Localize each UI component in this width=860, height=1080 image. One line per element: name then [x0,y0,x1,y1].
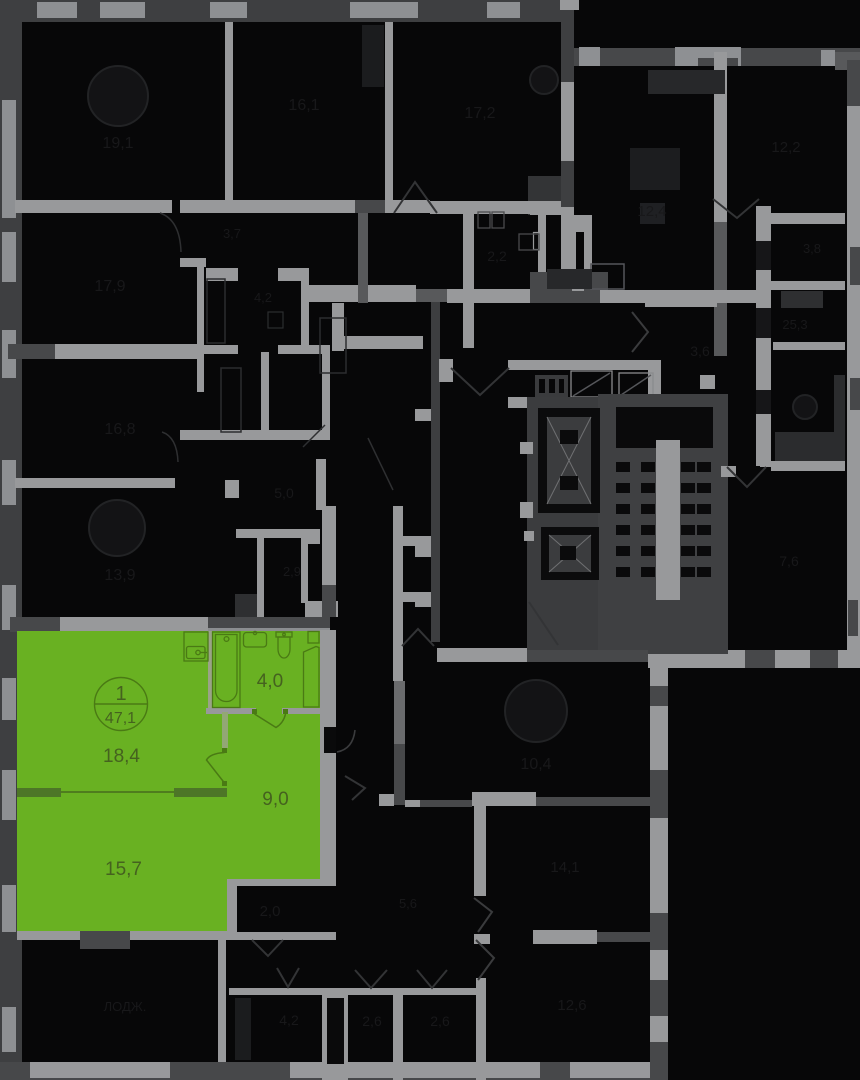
svg-text:25,3: 25,3 [782,317,807,332]
svg-text:18,4: 18,4 [103,746,140,767]
svg-text:16,1: 16,1 [288,97,319,114]
svg-text:4,0: 4,0 [257,671,283,692]
svg-text:5,6: 5,6 [399,896,417,911]
svg-text:12,4: 12,4 [637,203,666,220]
svg-text:19,1: 19,1 [102,135,133,152]
svg-text:3,7: 3,7 [223,226,241,241]
svg-text:4,2: 4,2 [254,290,272,305]
svg-text:15,7: 15,7 [105,859,142,880]
svg-text:12,6: 12,6 [557,997,586,1014]
svg-text:2,0: 2,0 [260,903,281,920]
svg-text:2,9: 2,9 [283,564,301,579]
svg-text:2,2: 2,2 [487,248,507,264]
svg-text:13,9: 13,9 [104,567,135,584]
svg-text:17,9: 17,9 [94,278,125,295]
svg-text:2,6: 2,6 [362,1013,382,1029]
svg-text:17,2: 17,2 [464,105,495,122]
svg-text:7,6: 7,6 [779,553,799,569]
svg-text:5,0: 5,0 [274,485,294,501]
svg-text:9,0: 9,0 [262,789,288,810]
svg-text:ЛОДЖ.: ЛОДЖ. [104,999,147,1014]
svg-text:4,2: 4,2 [279,1012,299,1028]
svg-text:16,8: 16,8 [104,421,135,438]
svg-text:14,1: 14,1 [550,859,579,876]
svg-text:1: 1 [115,683,126,705]
svg-text:2,6: 2,6 [430,1013,450,1029]
svg-text:3,6: 3,6 [690,343,710,359]
svg-text:10,4: 10,4 [520,756,551,773]
svg-text:47,1: 47,1 [105,710,136,727]
svg-text:12,2: 12,2 [771,139,800,156]
svg-text:3,8: 3,8 [803,241,821,256]
